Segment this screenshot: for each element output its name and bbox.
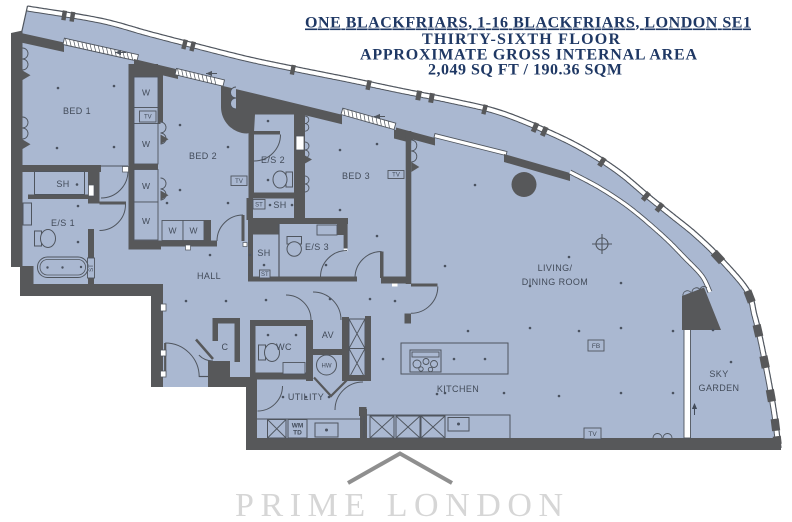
svg-text:WM: WM bbox=[292, 423, 304, 430]
svg-text:SKY: SKY bbox=[709, 369, 728, 379]
svg-text:THIRTY-SIXTH FLOOR: THIRTY-SIXTH FLOOR bbox=[422, 31, 620, 48]
svg-text:2,049 SQ FT / 190.36 SQM: 2,049 SQ FT / 190.36 SQM bbox=[428, 62, 622, 79]
svg-text:E/S 2: E/S 2 bbox=[261, 155, 285, 165]
svg-text:TV: TV bbox=[392, 173, 400, 179]
svg-text:E/S 1: E/S 1 bbox=[51, 218, 75, 228]
svg-text:ST: ST bbox=[255, 202, 263, 208]
svg-text:FB: FB bbox=[592, 343, 600, 350]
svg-text:W: W bbox=[189, 226, 197, 236]
svg-text:BED 1: BED 1 bbox=[63, 106, 91, 116]
svg-text:W: W bbox=[142, 87, 150, 97]
svg-text:SH: SH bbox=[273, 200, 286, 210]
svg-text:GARDEN: GARDEN bbox=[699, 383, 740, 393]
svg-text:KITCHEN: KITCHEN bbox=[437, 384, 479, 394]
svg-text:BED 2: BED 2 bbox=[189, 151, 217, 161]
svg-text:SH: SH bbox=[257, 248, 270, 258]
svg-text:HW: HW bbox=[322, 364, 332, 370]
svg-text:AV: AV bbox=[322, 330, 334, 340]
svg-text:TV: TV bbox=[144, 115, 152, 121]
svg-text:LIVING/: LIVING/ bbox=[538, 263, 573, 273]
svg-text:ONE BLACKFRIARS, 1-16 BLACKFRI: ONE BLACKFRIARS, 1-16 BLACKFRIARS, LONDO… bbox=[305, 15, 751, 32]
svg-text:BED 3: BED 3 bbox=[342, 171, 370, 181]
svg-text:W: W bbox=[142, 216, 150, 226]
svg-text:E/S 3: E/S 3 bbox=[305, 242, 329, 252]
svg-text:SH: SH bbox=[56, 179, 69, 189]
svg-text:HALL: HALL bbox=[197, 271, 221, 281]
svg-text:W: W bbox=[168, 226, 176, 236]
svg-text:W: W bbox=[142, 139, 150, 149]
svg-text:WC: WC bbox=[276, 342, 292, 352]
svg-text:ST: ST bbox=[89, 264, 95, 272]
svg-text:W: W bbox=[142, 181, 150, 191]
svg-text:TD: TD bbox=[293, 430, 302, 437]
svg-text:DINING ROOM: DINING ROOM bbox=[522, 277, 588, 287]
svg-text:TV: TV bbox=[235, 179, 243, 185]
svg-text:C: C bbox=[222, 342, 229, 352]
svg-text:ST: ST bbox=[261, 272, 269, 278]
svg-text:TV: TV bbox=[588, 431, 597, 438]
